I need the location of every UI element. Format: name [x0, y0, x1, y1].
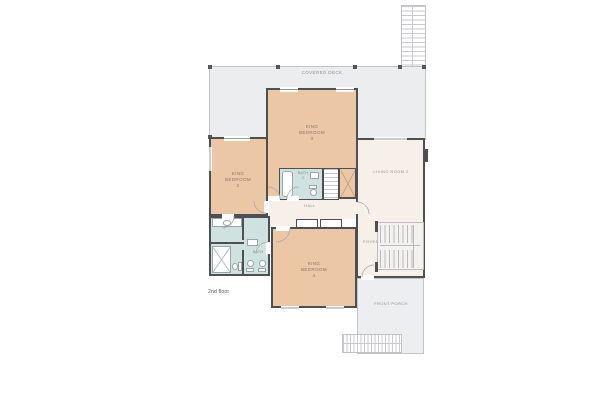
bedroom-3-closet [339, 168, 356, 199]
hall-label: HALL [290, 203, 330, 208]
toilet-bowl [310, 189, 317, 196]
door-gap [287, 196, 299, 201]
toilet-tank [258, 268, 266, 272]
bath-divider-wall [211, 242, 244, 244]
bath-label: BATH [250, 250, 266, 255]
vanity-sink [223, 220, 231, 226]
door-gap [355, 202, 360, 214]
floor-label: 2nd floor [208, 289, 229, 295]
front-porch-label: FRONT PORCH [363, 301, 419, 306]
door-gap [361, 275, 374, 280]
covered-deck-label: COVERED DECK [292, 70, 352, 76]
stair-wall [375, 262, 378, 272]
bath-2-label: BATH 2 [297, 171, 309, 181]
deck-post [353, 65, 357, 69]
king-bedroom-3-label: KING BEDROOM 3 [297, 124, 327, 142]
deck-post [398, 65, 402, 69]
door-gap [266, 242, 271, 254]
king-bedroom-2-label: KING BEDROOM 2 [223, 171, 253, 189]
interior-stair [377, 222, 424, 270]
stair-wall [375, 221, 378, 232]
living-room-2-label: LIVING ROOM 2 [361, 169, 421, 174]
king-bedroom-4-label: KING BEDROOM 4 [299, 261, 329, 279]
bath-divider-wall [242, 216, 244, 240]
toilet-tank [246, 268, 254, 272]
window [208, 147, 213, 171]
deck-post [208, 65, 212, 69]
window [224, 136, 250, 141]
bathtub [282, 171, 293, 197]
window [374, 137, 407, 142]
door-gap [264, 201, 269, 213]
door-gap [222, 214, 234, 220]
window [336, 87, 354, 92]
wall-pier [423, 149, 428, 162]
window [326, 306, 344, 311]
sink [247, 239, 258, 246]
linen-closet [323, 168, 339, 200]
shower [212, 246, 231, 273]
door-gap [276, 226, 290, 231]
window [280, 87, 298, 92]
sink [310, 172, 319, 179]
floor-plan: COVERED DECK KING BEDROOM 3 KING BEDROOM… [0, 0, 600, 400]
toilet-bowl [259, 260, 266, 267]
deck-post [276, 65, 280, 69]
bath-divider-wall [242, 250, 244, 276]
exterior-stair-top [401, 5, 426, 67]
door-gap [268, 196, 280, 201]
exterior-stair-bottom [342, 334, 402, 353]
toilet-tank [238, 262, 243, 271]
toilet-bowl [247, 260, 254, 267]
deck-post [422, 65, 426, 69]
window [281, 306, 299, 311]
